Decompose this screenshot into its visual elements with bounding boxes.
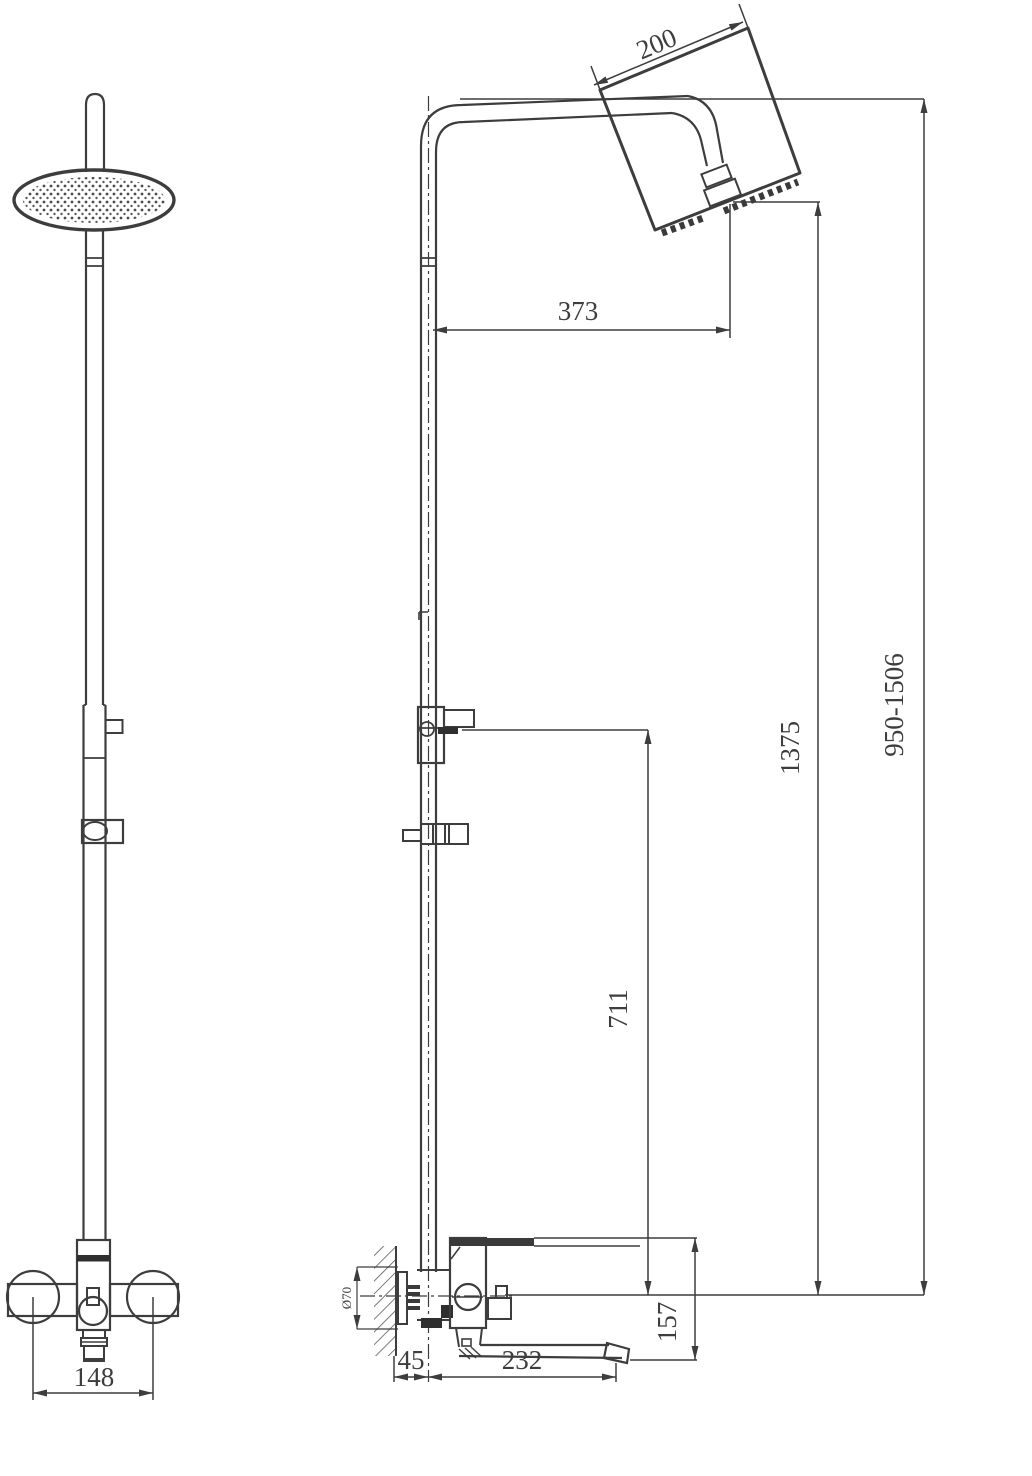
riser-collar-side [418, 707, 474, 763]
dim-escutcheon-label: Ø70 [339, 1287, 354, 1309]
spout-neck [456, 1328, 482, 1359]
riser-top-cap-front [86, 94, 104, 172]
front-view: 148 [7, 94, 179, 1400]
dim-200: 200 [591, 4, 750, 95]
collar-handle [444, 710, 474, 727]
dim-1375-label: 1375 [775, 721, 805, 775]
wall-connector [398, 1270, 453, 1328]
dim-950-1506: 950-1506 [460, 99, 924, 1295]
slide-bracket-front [82, 820, 123, 843]
right-arm [110, 1284, 178, 1316]
dim-45-label: 45 [398, 1345, 425, 1375]
shower-system-technical-drawing: 148 [0, 0, 1032, 1476]
dim-950-1506-label: 950-1506 [879, 653, 909, 757]
dim-45: 45 [394, 1345, 428, 1377]
side-view: 200 373 [339, 4, 924, 1382]
dim-148: 148 [33, 1297, 153, 1400]
riser-pipe-side [419, 96, 741, 1272]
dim-157-label: 157 [652, 1302, 682, 1343]
dim-157: 157 [630, 1238, 697, 1360]
drawing-svg: 148 [0, 0, 1032, 1476]
dim-711-label: 711 [603, 989, 633, 1029]
dim-373-label: 373 [558, 296, 599, 326]
dim-148-label: 148 [74, 1362, 115, 1392]
upper-bracket-tab-front [106, 720, 123, 733]
dim-232-label: 232 [502, 1345, 543, 1375]
shower-arm-bend [688, 96, 723, 163]
dim-711: 711 [462, 730, 648, 1295]
dim-373: 373 [433, 204, 730, 338]
rain-shower-head-front [14, 170, 174, 230]
mixer-side [450, 1238, 640, 1363]
diverter-side [488, 1286, 511, 1319]
left-arm [8, 1284, 77, 1316]
diverter-knob-front [79, 1297, 107, 1325]
tub-spout [459, 1343, 629, 1363]
riser-pipe-front [82, 230, 123, 1240]
escutcheon-side [398, 1272, 407, 1324]
dim-1375: 1375 [733, 202, 820, 1295]
dim-232: 232 [428, 1345, 616, 1382]
thread-nipple [408, 1285, 420, 1310]
mixer-body-band [77, 1255, 110, 1262]
mixer-outlet-front [81, 1330, 107, 1361]
